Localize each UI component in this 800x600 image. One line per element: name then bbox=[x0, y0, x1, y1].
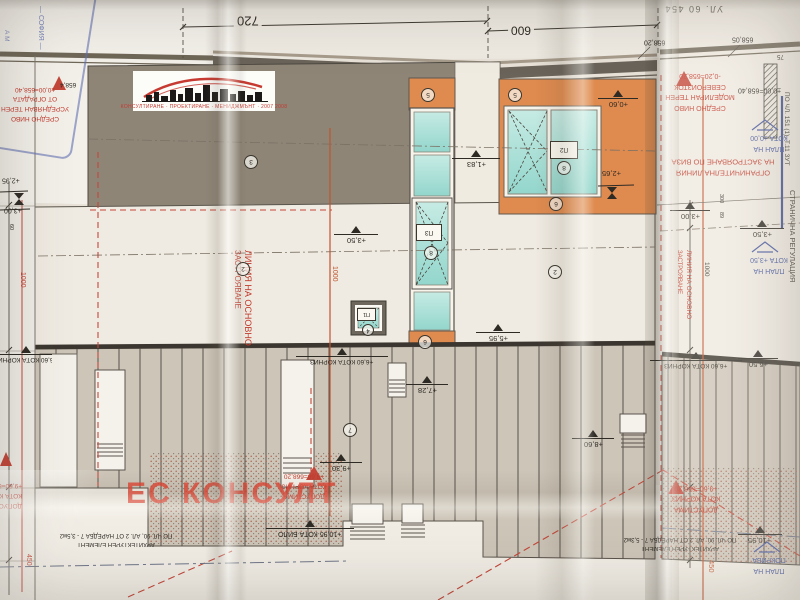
note-main-build-line-right: ЛИНИЯ НА ОСНОВНО ЗАСТРОЯВАНЕ bbox=[675, 250, 692, 319]
dim-60: 60 bbox=[7, 224, 14, 230]
dim-300: 300 bbox=[717, 194, 724, 203]
dim-75: 75 bbox=[777, 52, 784, 59]
tag-wall-mid-right: 2 bbox=[548, 265, 562, 279]
bowtie-marker-icon bbox=[607, 187, 617, 199]
level-marker-icon bbox=[613, 90, 623, 97]
note-plan-roof: ПЛАН НАПОКРИВА bbox=[744, 554, 794, 575]
tag-wall-mid-left: 2 bbox=[236, 262, 250, 276]
level-marker-icon bbox=[336, 454, 346, 461]
level-3-00-right: +3,00 bbox=[670, 202, 710, 221]
note-arch-element-left: АРХИТЕКТУРЕН ЕЛЕМЕНТПО ЧЛ. 90, АЛ. 2 ОТ … bbox=[40, 530, 192, 548]
street-label: УЛ. 60 454 bbox=[664, 3, 723, 14]
tag-wall-upper: 3 bbox=[244, 155, 258, 169]
dim-600: 600 bbox=[508, 23, 534, 37]
level-5-95: +5,95 bbox=[476, 324, 520, 343]
level-1-83: +1,83 bbox=[452, 150, 500, 169]
level-cornice-left: +6,60 КОТА КОРНИЗ bbox=[0, 346, 52, 363]
dim-1000-right: 1000 bbox=[702, 262, 710, 276]
level-3-00-left: +3,00 bbox=[4, 205, 22, 213]
level-marker-icon bbox=[422, 376, 432, 383]
note-zut: ПО ЧЛ. 151 (1), Т.11 ЗУТ bbox=[782, 92, 790, 166]
note-arch-element-right: АРХИТЕКТУРЕН ЕЛЕМЕНТПО ЧЛ. 90, АЛ. 2 ОТ … bbox=[622, 534, 738, 552]
tag-lintel-main: 5 bbox=[508, 88, 522, 102]
level-marker-icon bbox=[493, 324, 503, 331]
level-3-50-left: +3,50 bbox=[334, 226, 378, 245]
company-logo: КОНСУЛТИРАНЕ · ПРОЕКТИРАНЕ · МЕНИДЖМЪНТ … bbox=[133, 71, 275, 111]
dim-720: 720 bbox=[234, 13, 262, 29]
dim-450-right: 450 bbox=[707, 560, 716, 573]
level-marker-icon bbox=[351, 226, 361, 233]
level-6-50: +6,50 bbox=[738, 350, 778, 369]
level-marker-icon bbox=[755, 526, 765, 533]
level-7-28: +7,28 bbox=[406, 376, 448, 395]
stamp-fragment-text: А М bbox=[2, 30, 10, 42]
tag-sill-main: 6 bbox=[549, 197, 563, 211]
dim-1000-mid: 1000 bbox=[330, 266, 338, 282]
bowtie-marker-icon bbox=[14, 193, 24, 205]
note-side-regulation: СТРАНИЧНА РЕГУЛАЦИЯ bbox=[788, 190, 797, 282]
architectural-elevation-photo: 720 600 УЛ. 60 454 658,20 658,05 658,4 ±… bbox=[0, 0, 800, 600]
logo-skyline-icon bbox=[136, 73, 272, 103]
level-0-60: +0,60 bbox=[598, 90, 638, 109]
dim-1000-left: 1000 bbox=[18, 272, 26, 288]
level-cornice-right: +6,60 КОТА КОРНИЗ bbox=[650, 352, 742, 369]
level-marker-icon bbox=[753, 350, 763, 357]
plan-350-roof-icon bbox=[750, 240, 780, 254]
level-2-95: +2,95 bbox=[2, 175, 20, 183]
level-marker-icon bbox=[21, 346, 31, 353]
level-marker-icon bbox=[471, 150, 481, 157]
level-marker-icon bbox=[305, 520, 315, 527]
tag-roof: 7 bbox=[343, 423, 357, 437]
level-9-30: +9,30 bbox=[320, 454, 362, 473]
tag-window-p2: 8 bbox=[557, 161, 571, 175]
note-allowed-cornice-right: ДОПУСТИМАКОТА КОРНИЗ +9,60=668,20 bbox=[662, 482, 730, 514]
note-allowed-cornice-left-clipped: ДОПУСТИМАКОТА КОРНИЗ +9,60=668,20 bbox=[0, 448, 22, 510]
level-marker-icon bbox=[337, 348, 347, 355]
dim-89: 89 bbox=[717, 212, 724, 218]
level-cornice-mid: +6,60 КОТА КОРНИЗ bbox=[296, 348, 388, 365]
elev-658-05: 658,05 bbox=[732, 34, 753, 42]
tag-sill-strip: 6 bbox=[418, 335, 432, 349]
level-marker-icon bbox=[757, 220, 767, 227]
window-label-p1: П1 bbox=[357, 308, 376, 321]
note-model-terrain: СРЕДНО НИВОМОДЕЛИРАН ТЕРЕН СЕВЕРОИЗТОК-0… bbox=[654, 70, 746, 112]
window-label-p2: П2 bbox=[550, 141, 578, 159]
level-marker-icon bbox=[588, 430, 598, 437]
level-ridge-right: +10,95 bbox=[738, 526, 782, 545]
level-ridge: +10,95 КОТА БИЛО bbox=[266, 520, 354, 537]
logo-tagline: КОНСУЛТИРАНЕ · ПРОЕКТИРАНЕ · МЕНИДЖМЪНТ … bbox=[121, 104, 288, 110]
level-2-65: +2,65 bbox=[602, 169, 621, 178]
elev-658-20: 658,20 bbox=[644, 37, 665, 45]
level-3-50-right: +3,50 bbox=[740, 220, 784, 239]
tag-window-p1: 4 bbox=[362, 324, 374, 336]
stamp-city-text: — СОФИЯ — bbox=[36, 6, 44, 50]
tag-lintel-strip: 5 bbox=[421, 88, 435, 102]
level-marker-icon bbox=[685, 202, 695, 209]
window-label-p3: П3 bbox=[416, 224, 442, 241]
level-marker-icon bbox=[691, 352, 701, 359]
note-limit-line: ОГРАНИЧИТЕЛНА ЛИНИЯНА ЗАСТРОЯВАНЕ ПО ВИЗ… bbox=[650, 156, 796, 179]
level-8-60: +8,60 bbox=[572, 430, 614, 449]
dim-450-left: 450 bbox=[24, 554, 32, 566]
tag-window-p3: 8 bbox=[424, 246, 438, 260]
plan-zero-roof-icon bbox=[750, 118, 780, 132]
watermark-text: ЕС КОНСУЛТ bbox=[126, 477, 337, 511]
